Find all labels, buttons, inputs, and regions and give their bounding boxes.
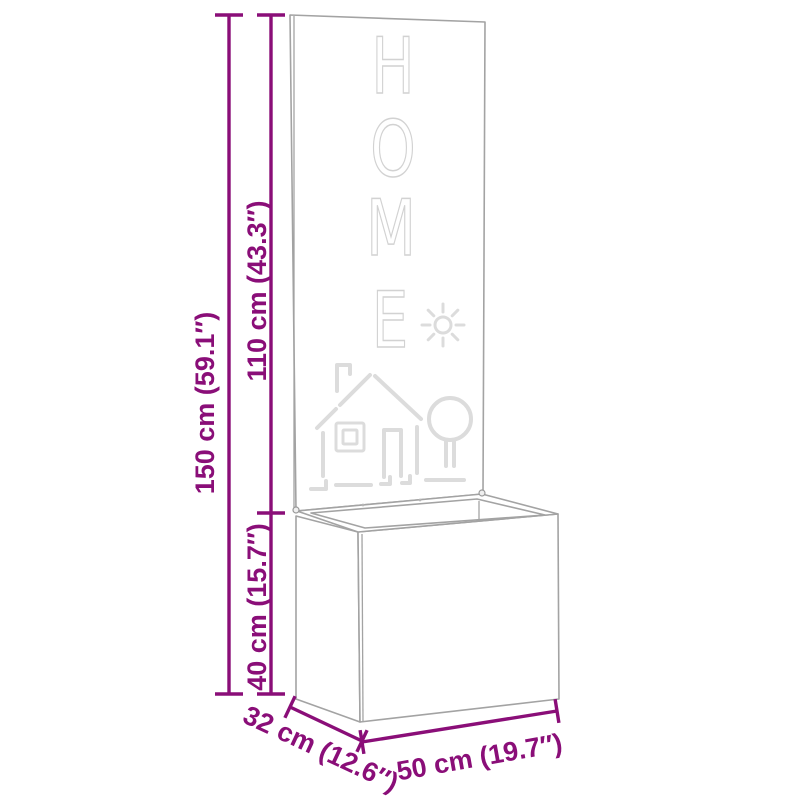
dimension-width-label: 50 cm (19.7″) [394, 728, 564, 787]
planter-box [293, 490, 559, 722]
cap-right [555, 699, 559, 723]
screw-left [293, 507, 299, 513]
product-drawing: H O M E [290, 15, 559, 722]
dimension-panel-height-label: 110 cm (43.3″) [242, 200, 272, 381]
dimension-total-height-label: 150 cm (59.1″) [190, 312, 220, 495]
cutout-letter-h: H [371, 21, 414, 112]
dimension-box-height-label: 40 cm (15.7″) [242, 523, 272, 691]
box-left-face [296, 516, 360, 722]
dimension-box-height: 40 cm (15.7″) [242, 513, 285, 694]
cutout-letter-m: M [366, 183, 416, 274]
dimension-total-height: 150 cm (59.1″) [190, 15, 243, 694]
cutout-letter-e: E [372, 275, 408, 366]
cutout-letter-o: O [370, 104, 415, 195]
product-dimension-diagram: H O M E [0, 0, 800, 800]
diagram-svg: H O M E [0, 0, 800, 800]
rim-rivet-2 [419, 499, 422, 502]
dimension-panel-height: 110 cm (43.3″) [242, 15, 285, 513]
rim-rivet-1 [362, 504, 365, 507]
screw-right [479, 490, 485, 496]
box-front-face [358, 514, 559, 722]
